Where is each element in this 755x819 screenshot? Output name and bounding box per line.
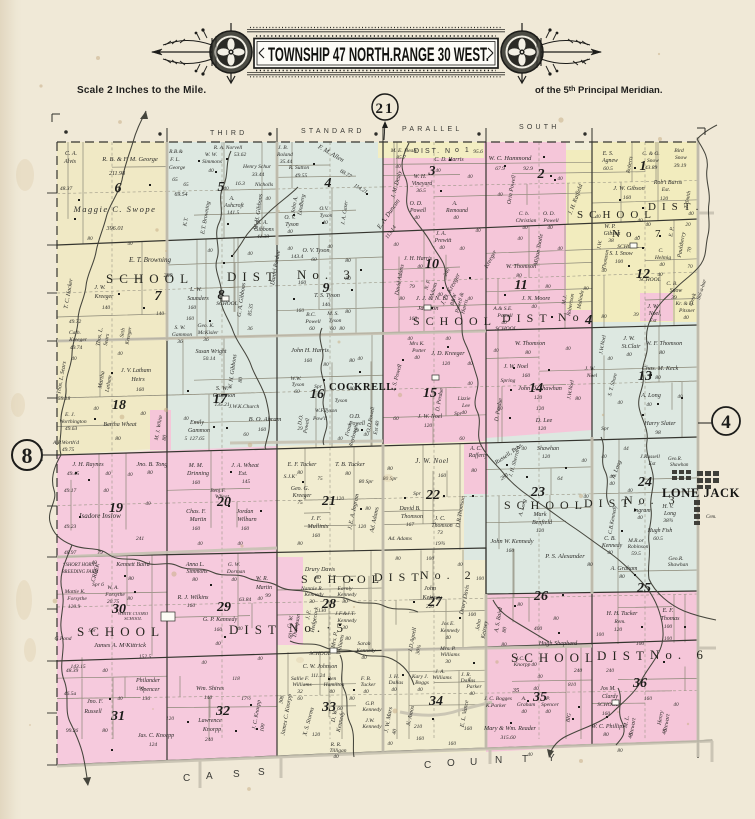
svg-text:80: 80 bbox=[525, 350, 531, 356]
svg-text:S. W.: S. W. bbox=[216, 385, 228, 392]
svg-text:40: 40 bbox=[545, 708, 551, 715]
svg-text:80: 80 bbox=[516, 273, 522, 279]
svg-text:35.44: 35.44 bbox=[279, 158, 293, 165]
svg-text:40: 40 bbox=[557, 246, 563, 252]
svg-text:120: 120 bbox=[536, 406, 545, 412]
svg-text:Maggie C. Swope: Maggie C. Swope bbox=[73, 204, 157, 214]
svg-text:43.89: 43.89 bbox=[645, 164, 658, 171]
svg-text:C. B.: C. B. bbox=[666, 281, 677, 287]
svg-text:80: 80 bbox=[345, 276, 351, 282]
svg-text:Drury Davis: Drury Davis bbox=[304, 567, 336, 573]
svg-text:79: 79 bbox=[409, 284, 415, 290]
svg-text:40: 40 bbox=[223, 186, 229, 192]
svg-text:40: 40 bbox=[437, 291, 443, 298]
svg-text:118: 118 bbox=[232, 676, 240, 682]
svg-text:240: 240 bbox=[606, 668, 614, 674]
svg-text:40: 40 bbox=[461, 409, 467, 416]
svg-text:40: 40 bbox=[361, 654, 367, 661]
svg-text:S: S bbox=[233, 769, 240, 780]
svg-text:Tyson: Tyson bbox=[292, 382, 305, 388]
svg-text:Emily: Emily bbox=[189, 420, 204, 426]
svg-text:Chas. M. Keck: Chas. M. Keck bbox=[642, 365, 679, 372]
svg-text:160: 160 bbox=[506, 548, 515, 554]
svg-text:J. W. Gibson: J. W. Gibson bbox=[613, 185, 644, 192]
svg-text:Hugh Shepherd: Hugh Shepherd bbox=[538, 640, 578, 647]
svg-text:80: 80 bbox=[102, 728, 108, 734]
svg-text:Bertha Wheat: Bertha Wheat bbox=[103, 422, 136, 428]
svg-text:SCHOOL: SCHOOL bbox=[301, 572, 385, 586]
svg-text:40: 40 bbox=[469, 690, 475, 697]
svg-text:“SHORT HORN”: “SHORT HORN” bbox=[63, 562, 98, 568]
svg-text:40: 40 bbox=[237, 626, 243, 632]
svg-text:Lee: Lee bbox=[461, 403, 471, 409]
svg-text:60: 60 bbox=[393, 416, 399, 422]
svg-text:120: 120 bbox=[336, 496, 344, 502]
svg-text:W. R.: W. R. bbox=[256, 576, 268, 582]
svg-text:Agnew: Agnew bbox=[601, 158, 618, 164]
svg-text:Cath.: Cath. bbox=[69, 330, 81, 336]
svg-text:Gammon: Gammon bbox=[172, 332, 192, 338]
svg-text:Mark: Mark bbox=[533, 512, 547, 518]
svg-text:75: 75 bbox=[297, 500, 303, 506]
svg-text:36: 36 bbox=[632, 676, 647, 691]
svg-text:120: 120 bbox=[442, 361, 451, 367]
svg-text:80: 80 bbox=[128, 576, 134, 582]
svg-text:O: O bbox=[447, 758, 455, 769]
svg-text:Hugh Fish: Hugh Fish bbox=[647, 528, 673, 534]
svg-text:A.: A. bbox=[452, 201, 458, 207]
svg-text:J. B.: J. B. bbox=[278, 145, 288, 151]
svg-text:E. F.: E. F. bbox=[661, 608, 673, 614]
svg-text:4: 4 bbox=[324, 176, 332, 191]
svg-text:80: 80 bbox=[127, 596, 133, 602]
svg-text:75: 75 bbox=[317, 476, 323, 482]
svg-text:S. I. Snow: S. I. Snow bbox=[609, 251, 632, 257]
svg-text:39: 39 bbox=[633, 312, 639, 318]
svg-text:40: 40 bbox=[201, 660, 207, 666]
svg-text:G.Pond: G.Pond bbox=[55, 636, 72, 642]
svg-text:160: 160 bbox=[188, 305, 197, 311]
svg-text:40: 40 bbox=[102, 667, 108, 674]
svg-text:60: 60 bbox=[297, 696, 303, 702]
svg-text:Philander: Philander bbox=[135, 678, 161, 684]
svg-text:Wm. Shires: Wm. Shires bbox=[196, 685, 225, 692]
svg-text:40: 40 bbox=[595, 214, 601, 220]
svg-text:Est: Est bbox=[648, 318, 657, 324]
svg-text:DIST. N: DIST. N bbox=[414, 148, 452, 155]
svg-text:Jno. F.: Jno. F. bbox=[87, 699, 103, 705]
svg-text:SCHOOL: SCHOOL bbox=[413, 314, 497, 328]
svg-text:40: 40 bbox=[607, 356, 613, 362]
svg-text:THIRD: THIRD bbox=[210, 130, 247, 137]
svg-text:Benfield: Benfield bbox=[532, 519, 553, 526]
svg-text:40: 40 bbox=[637, 514, 643, 521]
svg-text:26: 26 bbox=[533, 589, 548, 604]
svg-text:120: 120 bbox=[536, 528, 545, 534]
svg-text:241: 241 bbox=[136, 535, 145, 542]
svg-text:Anna L.: Anna L. bbox=[185, 562, 204, 568]
svg-text:40: 40 bbox=[583, 494, 589, 500]
svg-text:160: 160 bbox=[522, 373, 531, 379]
svg-text:152.5: 152.5 bbox=[139, 654, 152, 660]
svg-text:95.6: 95.6 bbox=[473, 149, 483, 155]
svg-text:J. F.: J. F. bbox=[311, 515, 321, 522]
svg-text:69.54: 69.54 bbox=[174, 191, 187, 198]
svg-text:80: 80 bbox=[399, 296, 405, 302]
svg-text:M. M.: M. M. bbox=[188, 463, 204, 469]
svg-text:Noel: Noel bbox=[586, 373, 598, 379]
svg-text:80: 80 bbox=[517, 602, 523, 608]
svg-text:49.23: 49.23 bbox=[64, 523, 77, 530]
svg-text:40: 40 bbox=[393, 242, 399, 248]
svg-text:Russell: Russell bbox=[83, 709, 102, 715]
svg-text:40: 40 bbox=[103, 487, 109, 494]
svg-text:80: 80 bbox=[365, 506, 371, 512]
svg-text:38: 38 bbox=[607, 238, 614, 244]
svg-text:Kennedy: Kennedy bbox=[361, 724, 382, 730]
svg-text:40: 40 bbox=[140, 410, 146, 417]
svg-text:11: 11 bbox=[514, 278, 527, 293]
svg-text:Spr: Spr bbox=[601, 426, 610, 432]
svg-text:98: 98 bbox=[655, 430, 661, 436]
svg-text:60: 60 bbox=[330, 326, 336, 332]
svg-text:40: 40 bbox=[673, 702, 679, 708]
svg-text:Snow: Snow bbox=[647, 158, 659, 164]
svg-text:23: 23 bbox=[530, 485, 545, 500]
svg-text:31: 31 bbox=[110, 709, 125, 724]
svg-text:80: 80 bbox=[238, 376, 245, 383]
svg-text:120: 120 bbox=[660, 196, 669, 202]
svg-text:40: 40 bbox=[435, 168, 441, 174]
svg-text:100: 100 bbox=[636, 641, 645, 647]
svg-text:M. E. Healy: M. E. Healy bbox=[390, 148, 418, 154]
svg-text:80: 80 bbox=[659, 350, 665, 356]
svg-text:30: 30 bbox=[308, 599, 315, 605]
svg-text:40: 40 bbox=[287, 228, 293, 235]
svg-text:Snow: Snow bbox=[675, 155, 687, 161]
svg-text:Pow'll: Pow'll bbox=[312, 416, 327, 422]
svg-text:John W. Kennedy: John W. Kennedy bbox=[491, 538, 534, 545]
svg-text:L. W.: L. W. bbox=[189, 287, 202, 293]
svg-text:John: John bbox=[424, 585, 436, 592]
svg-text:Knorpp: Knorpp bbox=[202, 727, 221, 733]
svg-text:George: George bbox=[169, 165, 186, 171]
svg-text:36.5: 36.5 bbox=[415, 188, 426, 194]
svg-text:Ashcroft: Ashcroft bbox=[223, 202, 244, 209]
svg-text:Clardy: Clardy bbox=[602, 694, 618, 700]
svg-text:240: 240 bbox=[205, 736, 214, 743]
svg-text:40: 40 bbox=[105, 470, 111, 477]
svg-text:John H. Harris: John H. Harris bbox=[291, 347, 329, 354]
svg-text:Drinning: Drinning bbox=[186, 471, 209, 477]
svg-text:Williams: Williams bbox=[440, 652, 459, 658]
svg-text:80: 80 bbox=[471, 468, 477, 474]
svg-text:SOUTH: SOUTH bbox=[519, 124, 560, 131]
svg-text:160: 160 bbox=[409, 316, 418, 322]
svg-text:80: 80 bbox=[349, 386, 355, 392]
svg-text:Kennedy: Kennedy bbox=[601, 543, 623, 549]
svg-text:Keirsey: Keirsey bbox=[422, 594, 442, 601]
svg-text:Shawhan: Shawhan bbox=[668, 562, 688, 568]
svg-text:40: 40 bbox=[607, 549, 613, 556]
svg-text:40: 40 bbox=[439, 244, 445, 251]
svg-text:67.9: 67.9 bbox=[495, 166, 505, 172]
svg-text:124: 124 bbox=[149, 741, 158, 748]
svg-text:40: 40 bbox=[357, 356, 363, 362]
svg-text:49.17: 49.17 bbox=[64, 487, 77, 494]
svg-text:99: 99 bbox=[265, 593, 271, 599]
svg-text:Kennedy: Kennedy bbox=[355, 648, 376, 654]
svg-text:100: 100 bbox=[426, 556, 434, 562]
svg-text:160: 160 bbox=[304, 358, 313, 364]
svg-text:80: 80 bbox=[297, 541, 303, 547]
svg-text:Gibson: Gibson bbox=[604, 231, 621, 237]
svg-text:40: 40 bbox=[247, 251, 253, 257]
svg-text:C. W. Johnson: C. W. Johnson bbox=[303, 664, 337, 670]
svg-text:H. V.: H. V. bbox=[661, 504, 674, 510]
svg-text:Dallas: Dallas bbox=[388, 680, 404, 686]
svg-text:E. J.: E. J. bbox=[64, 412, 75, 418]
svg-text:120: 120 bbox=[166, 716, 174, 722]
svg-text:20.75: 20.75 bbox=[107, 599, 120, 605]
svg-text:30: 30 bbox=[444, 659, 451, 665]
svg-text:100: 100 bbox=[468, 612, 477, 618]
svg-text:Jno. B. Tong: Jno. B. Tong bbox=[136, 461, 167, 468]
svg-text:127.65: 127.65 bbox=[189, 436, 204, 442]
svg-text:J.: J. bbox=[468, 677, 472, 683]
svg-text:24: 24 bbox=[637, 475, 652, 490]
svg-text:Simmons: Simmons bbox=[187, 569, 209, 575]
svg-text:R.B.&: R.B.& bbox=[168, 149, 183, 155]
svg-text:99.26: 99.26 bbox=[66, 728, 79, 734]
svg-text:Kreeger: Kreeger bbox=[94, 294, 115, 300]
svg-text:160: 160 bbox=[186, 316, 194, 322]
svg-text:Christian: Christian bbox=[516, 218, 537, 224]
svg-text:Spencer: Spencer bbox=[140, 687, 160, 693]
svg-text:35: 35 bbox=[512, 687, 520, 694]
svg-text:W. Thomson: W. Thomson bbox=[506, 263, 536, 270]
svg-text:40: 40 bbox=[626, 351, 632, 358]
svg-text:73: 73 bbox=[437, 530, 443, 536]
svg-text:W. Thomson: W. Thomson bbox=[515, 340, 545, 347]
svg-text:Geo. K.: Geo. K. bbox=[198, 323, 215, 329]
svg-text:18: 18 bbox=[112, 398, 126, 413]
svg-text:40: 40 bbox=[414, 214, 420, 221]
svg-text:o 1: o 1 bbox=[455, 147, 471, 154]
svg-text:15: 15 bbox=[423, 386, 437, 401]
svg-text:40: 40 bbox=[627, 488, 633, 494]
svg-text:40: 40 bbox=[581, 458, 587, 464]
svg-text:36: 36 bbox=[176, 339, 183, 345]
svg-text:B.C.: B.C. bbox=[306, 312, 316, 318]
svg-text:Kennett Baird: Kennett Baird bbox=[115, 562, 151, 568]
svg-text:160: 160 bbox=[296, 308, 304, 314]
svg-text:J. N. Moore: J. N. Moore bbox=[522, 296, 551, 302]
svg-text:Isadore Inslow: Isadore Inslow bbox=[78, 512, 121, 520]
svg-text:Kreeger: Kreeger bbox=[68, 337, 88, 343]
svg-text:396.01: 396.01 bbox=[105, 225, 123, 232]
svg-text:C: C bbox=[424, 760, 431, 771]
svg-text:40: 40 bbox=[547, 224, 553, 231]
svg-text:40: 40 bbox=[467, 381, 473, 387]
svg-text:DIST: DIST bbox=[374, 570, 425, 584]
svg-text:Tyson: Tyson bbox=[335, 398, 348, 404]
svg-text:120: 120 bbox=[312, 732, 321, 738]
svg-text:40: 40 bbox=[207, 248, 213, 254]
svg-text:49.75: 49.75 bbox=[62, 446, 75, 453]
svg-text:Est.: Est. bbox=[661, 187, 670, 193]
svg-text:Remound: Remound bbox=[445, 208, 468, 214]
svg-text:100: 100 bbox=[615, 259, 624, 265]
svg-text:Thomas: Thomas bbox=[660, 616, 680, 622]
svg-text:Vineyard: Vineyard bbox=[412, 181, 433, 187]
svg-text:141.5: 141.5 bbox=[227, 209, 240, 216]
svg-text:PARALLEL: PARALLEL bbox=[402, 126, 463, 133]
svg-text:S.J.K': S.J.K' bbox=[284, 474, 298, 480]
svg-text:U: U bbox=[470, 757, 477, 768]
svg-text:Martin: Martin bbox=[255, 585, 272, 591]
svg-text:39.19: 39.19 bbox=[673, 163, 687, 169]
svg-text:60: 60 bbox=[311, 257, 317, 263]
svg-text:21: 21 bbox=[376, 101, 395, 117]
svg-text:315.60: 315.60 bbox=[499, 735, 515, 741]
svg-text:Tyson: Tyson bbox=[320, 213, 333, 219]
svg-text:Susan Wright: Susan Wright bbox=[195, 349, 226, 355]
svg-text:Snow: Snow bbox=[670, 288, 683, 294]
svg-text:145: 145 bbox=[242, 478, 251, 485]
svg-text:J. W.: J. W. bbox=[585, 366, 596, 372]
svg-text:80: 80 bbox=[553, 616, 559, 622]
svg-text:140: 140 bbox=[204, 694, 213, 701]
svg-text:Tyson: Tyson bbox=[285, 222, 299, 228]
svg-text:160: 160 bbox=[298, 280, 307, 286]
svg-text:Rob't Burns: Rob't Burns bbox=[653, 180, 683, 186]
svg-text:Bird: Bird bbox=[674, 148, 684, 154]
svg-text:80: 80 bbox=[345, 471, 351, 477]
svg-text:60: 60 bbox=[294, 389, 300, 395]
svg-text:59.18: 59.18 bbox=[58, 396, 71, 402]
svg-text:120: 120 bbox=[542, 454, 551, 460]
svg-text:S. W.: S. W. bbox=[175, 325, 186, 331]
svg-text:DIST: DIST bbox=[597, 648, 650, 663]
svg-text:40: 40 bbox=[467, 360, 473, 367]
svg-text:Hamilton: Hamilton bbox=[323, 682, 345, 688]
svg-text:A. Long: A. Long bbox=[640, 392, 661, 399]
svg-text:Ad. Adams: Ad. Adams bbox=[387, 536, 412, 542]
svg-text:25: 25 bbox=[636, 581, 651, 596]
svg-text:H. H. Tucker: H. H. Tucker bbox=[606, 611, 639, 617]
svg-text:Tyson: Tyson bbox=[329, 318, 342, 324]
svg-text:140: 140 bbox=[322, 301, 331, 308]
svg-text:92.9: 92.9 bbox=[523, 166, 533, 172]
svg-text:40: 40 bbox=[522, 224, 528, 231]
svg-text:J.Russell: J.Russell bbox=[640, 454, 660, 460]
svg-text:44: 44 bbox=[623, 446, 629, 452]
svg-text:40: 40 bbox=[231, 576, 237, 583]
svg-text:C. A.: C. A. bbox=[65, 151, 77, 157]
svg-text:80: 80 bbox=[315, 575, 321, 581]
svg-text:of the 5th Principal Meridian.: of the 5th Principal Meridian. bbox=[535, 85, 663, 96]
svg-text:Mullinix: Mullinix bbox=[307, 523, 329, 530]
svg-text:Spr: Spr bbox=[314, 384, 323, 390]
svg-text:40: 40 bbox=[637, 218, 643, 224]
svg-text:40: 40 bbox=[457, 562, 463, 568]
svg-text:E. S.: E. S. bbox=[602, 151, 614, 157]
svg-text:A: A bbox=[206, 771, 213, 782]
svg-text:D. Lee: D. Lee bbox=[535, 417, 553, 424]
svg-text:120: 120 bbox=[424, 423, 433, 429]
svg-text:40: 40 bbox=[387, 741, 393, 747]
svg-text:40: 40 bbox=[459, 246, 465, 252]
svg-text:40: 40 bbox=[445, 634, 451, 641]
svg-text:46.5a: 46.5a bbox=[64, 690, 77, 697]
svg-text:Kennedy: Kennedy bbox=[361, 707, 382, 713]
svg-text:S: S bbox=[258, 767, 265, 778]
svg-text:SCHOOL: SCHOOL bbox=[106, 271, 194, 286]
svg-text:4: 4 bbox=[584, 313, 592, 328]
svg-text:40: 40 bbox=[517, 236, 523, 242]
svg-text:O. D.: O. D. bbox=[543, 211, 555, 217]
svg-text:60: 60 bbox=[243, 432, 249, 438]
svg-text:Shawhan: Shawhan bbox=[670, 463, 689, 468]
svg-text:Spring: Spring bbox=[501, 378, 516, 384]
svg-text:Williams: Williams bbox=[432, 675, 451, 681]
svg-text:40: 40 bbox=[521, 708, 527, 715]
svg-text:J.W.K.Church: J.W.K.Church bbox=[229, 404, 260, 410]
svg-text:No. 2: No. 2 bbox=[420, 568, 477, 582]
svg-text:80: 80 bbox=[345, 258, 351, 264]
svg-text:J. W.: J. W. bbox=[623, 336, 635, 342]
svg-text:Long: Long bbox=[663, 511, 676, 517]
svg-text:40: 40 bbox=[215, 640, 221, 647]
svg-text:33.44: 33.44 bbox=[251, 171, 265, 178]
svg-text:W. H.: W. H. bbox=[414, 174, 427, 180]
svg-text:Kennedy: Kennedy bbox=[439, 628, 460, 634]
svg-text:50.14: 50.14 bbox=[203, 355, 216, 362]
svg-text:J. C. Bogges: J. C. Bogges bbox=[484, 696, 512, 702]
svg-text:40: 40 bbox=[501, 319, 507, 326]
svg-text:J. W. Noel: J. W. Noel bbox=[418, 414, 443, 420]
svg-text:Rem.: Rem. bbox=[613, 619, 625, 625]
svg-text:49.63: 49.63 bbox=[65, 425, 78, 432]
svg-text:SCHOOL: SCHOOL bbox=[309, 651, 330, 657]
svg-text:80: 80 bbox=[619, 574, 625, 580]
svg-text:40: 40 bbox=[329, 688, 335, 695]
svg-text:E. F. Tucker: E. F. Tucker bbox=[287, 462, 318, 468]
svg-text:120: 120 bbox=[358, 524, 367, 530]
svg-text:J.F.&J.T.: J.F.&J.T. bbox=[335, 611, 355, 617]
svg-text:C.: C. bbox=[658, 248, 663, 254]
svg-text:5: 5 bbox=[185, 436, 188, 442]
svg-text:80: 80 bbox=[87, 236, 93, 242]
svg-text:Powell: Powell bbox=[496, 313, 513, 319]
svg-text:80: 80 bbox=[601, 314, 607, 320]
svg-text:J. D. Kreeger: J. D. Kreeger bbox=[431, 350, 465, 357]
svg-text:29: 29 bbox=[216, 600, 231, 615]
svg-text:Powell: Powell bbox=[304, 319, 321, 325]
svg-text:Gammon: Gammon bbox=[188, 428, 210, 434]
svg-text:810: 810 bbox=[568, 682, 576, 688]
svg-text:60: 60 bbox=[337, 706, 343, 712]
svg-text:48.97: 48.97 bbox=[64, 549, 77, 556]
svg-text:Saunders: Saunders bbox=[187, 296, 209, 302]
svg-text:40: 40 bbox=[565, 346, 571, 352]
svg-text:40: 40 bbox=[127, 472, 133, 478]
svg-text:143.4: 143.4 bbox=[291, 253, 304, 260]
svg-text:20: 20 bbox=[685, 222, 691, 228]
svg-text:40: 40 bbox=[527, 752, 533, 758]
svg-text:O. V. Tyson: O. V. Tyson bbox=[302, 248, 329, 254]
